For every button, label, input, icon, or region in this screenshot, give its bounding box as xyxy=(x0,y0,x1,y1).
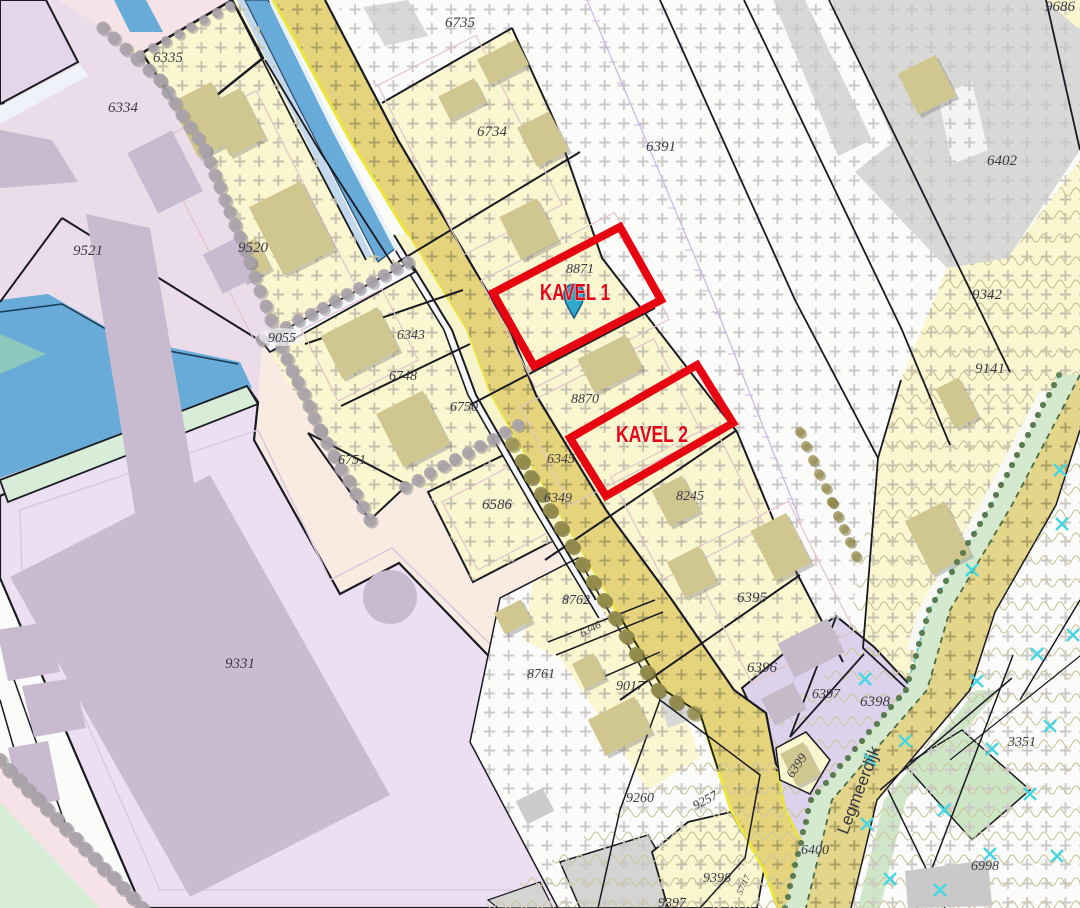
svg-text:8871: 8871 xyxy=(566,262,594,277)
svg-text:9342: 9342 xyxy=(972,287,1003,303)
svg-text:6335: 6335 xyxy=(153,50,184,66)
svg-text:9520: 9520 xyxy=(238,240,269,256)
svg-text:8762: 8762 xyxy=(562,593,590,608)
svg-text:9521: 9521 xyxy=(73,243,103,259)
svg-text:9260: 9260 xyxy=(626,791,654,806)
svg-text:6398: 6398 xyxy=(860,694,891,710)
svg-text:6748: 6748 xyxy=(389,369,417,384)
svg-text:6395: 6395 xyxy=(737,590,768,606)
svg-text:6735: 6735 xyxy=(445,15,476,31)
svg-text:6734: 6734 xyxy=(477,124,508,140)
svg-text:6402: 6402 xyxy=(987,153,1018,169)
svg-text:6391: 6391 xyxy=(646,139,676,155)
svg-text:6751: 6751 xyxy=(338,453,366,468)
svg-text:9017: 9017 xyxy=(616,679,645,694)
svg-text:9397: 9397 xyxy=(658,896,687,908)
svg-text:9686: 9686 xyxy=(1045,0,1076,15)
svg-text:KAVEL 1: KAVEL 1 xyxy=(540,279,610,305)
svg-text:6586: 6586 xyxy=(482,497,513,513)
svg-text:9331: 9331 xyxy=(225,656,255,672)
svg-text:8870: 8870 xyxy=(571,392,599,407)
svg-text:6397: 6397 xyxy=(812,687,841,702)
svg-text:9398: 9398 xyxy=(703,871,731,886)
svg-text:KAVEL 2: KAVEL 2 xyxy=(616,421,688,447)
svg-text:6400: 6400 xyxy=(801,843,829,858)
svg-text:8761: 8761 xyxy=(527,667,555,682)
svg-text:6343: 6343 xyxy=(397,328,425,343)
svg-text:6334: 6334 xyxy=(108,100,139,116)
svg-text:6349: 6349 xyxy=(544,491,572,506)
svg-text:3351: 3351 xyxy=(1007,735,1036,750)
svg-text:9055: 9055 xyxy=(268,331,296,346)
svg-text:6998: 6998 xyxy=(971,859,999,874)
svg-text:6750: 6750 xyxy=(450,400,478,415)
svg-text:8245: 8245 xyxy=(676,489,704,504)
svg-text:9141: 9141 xyxy=(975,361,1005,377)
svg-text:6345: 6345 xyxy=(547,452,575,467)
svg-text:6396: 6396 xyxy=(747,660,778,676)
